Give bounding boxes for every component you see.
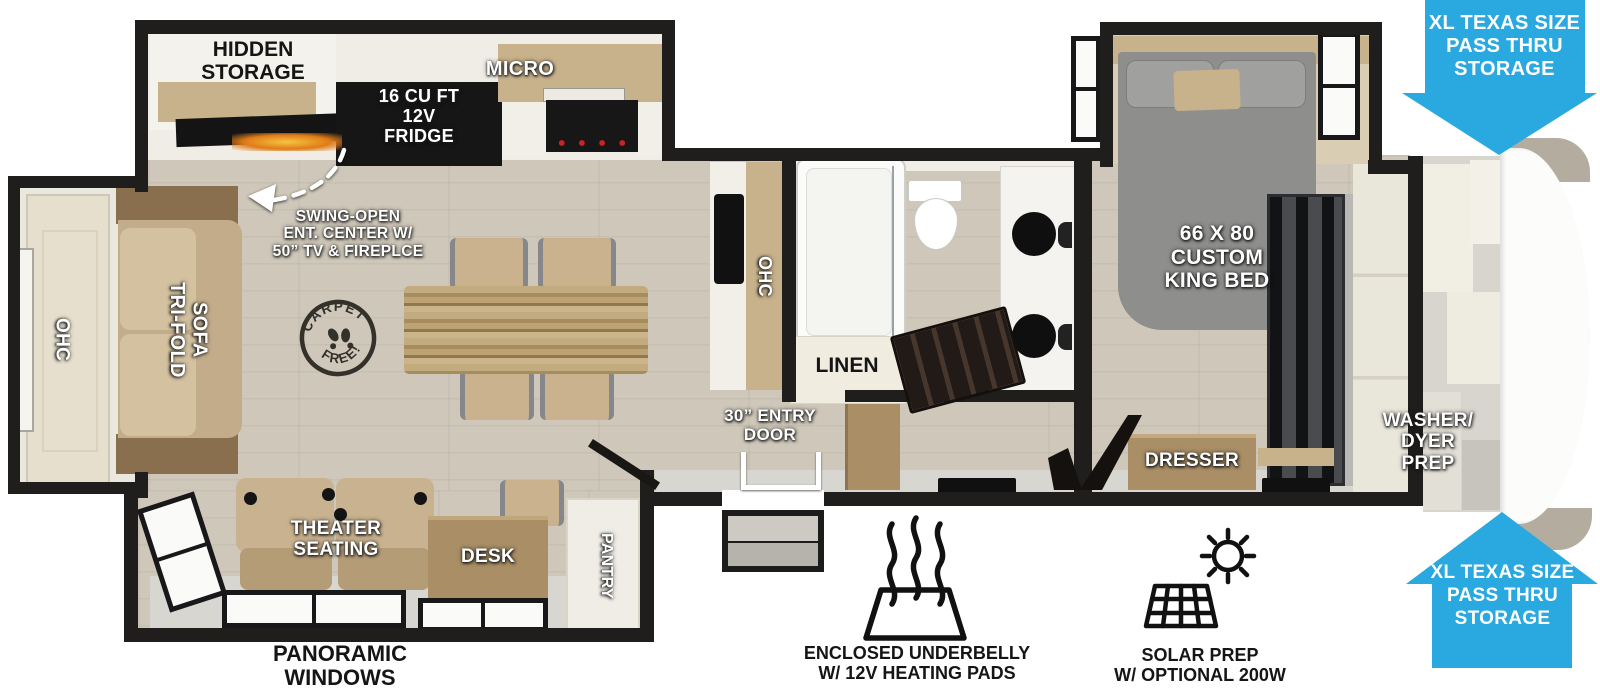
linen-label: LINEN: [790, 354, 904, 377]
entry-door-gap: [722, 490, 824, 508]
dinette-chair-1: [450, 238, 528, 290]
hall-wardrobe: [845, 402, 900, 490]
wall-lounge-left: [124, 488, 138, 642]
cupholder-2: [322, 488, 335, 501]
wall-bottom-right-seg: [822, 492, 1423, 506]
wall-top-mid: [662, 148, 1112, 161]
entry-steps: [722, 510, 824, 572]
pass-thru-top-label: XL TEXAS SIZE PASS THRU STORAGE: [1417, 12, 1592, 81]
vanity-faucet-1: [1058, 222, 1072, 248]
underbelly-caption: ENCLOSED UNDERBELLY W/ 12V HEATING PADS: [782, 644, 1052, 684]
bed-window-right: [1318, 32, 1360, 140]
wall-kitchen-right: [662, 20, 675, 160]
wall-sofa-slide-top: [8, 176, 148, 188]
wall-bedslide-left: [1100, 22, 1113, 167]
rv-floorplan: HIDDEN STORAGE 16 CU FT 12V FRIDGE MICRO…: [0, 0, 1600, 688]
wall-kitchen-top: [135, 20, 675, 34]
entry-door-bracket: [741, 452, 821, 490]
solar-caption: SOLAR PREP W/ OPTIONAL 200W SOLAR PACKAG…: [1090, 646, 1310, 688]
fridge-label: 16 CU FT 12V FRIDGE: [346, 86, 492, 146]
panoramic-window-2: [418, 598, 548, 632]
wall-sofa-slide-left: [8, 176, 20, 494]
carpet-free-stamp: CARPET FREE!: [291, 291, 386, 386]
panoramic-window-1: [222, 590, 406, 628]
wall-lounge-bottom: [124, 628, 654, 642]
shower-glass: [892, 166, 894, 338]
solar-prep-icon: [1136, 528, 1276, 636]
sofa-end-table-bottom: [116, 434, 238, 474]
hidden-storage-label: HIDDEN STORAGE: [178, 38, 328, 84]
throw-pillow: [1173, 69, 1240, 111]
panoramic-caption: PANORAMIC WINDOWS: [240, 642, 440, 688]
dresser-label: DRESSER: [1128, 450, 1256, 471]
vanity-faucet-2: [1058, 324, 1072, 350]
dinette-table: [404, 286, 648, 374]
bed-window-left: [1071, 36, 1101, 142]
wall-bedslide-top: [1100, 22, 1382, 35]
vanity-sink-1: [1012, 212, 1056, 256]
wall-bedslide-right: [1369, 22, 1382, 167]
entry-door-label: 30” ENTRY DOOR: [695, 406, 845, 444]
pass-thru-bottom-label: XL TEXAS SIZE PASS THRU STORAGE: [1420, 562, 1585, 630]
cupholder-1: [244, 492, 257, 505]
storage-shelf-1: [1423, 164, 1473, 292]
pantry-label: PANTRY: [588, 510, 624, 622]
swing-arrow-dashed: [240, 138, 360, 222]
vanity-sink-2: [1012, 314, 1056, 358]
front-cap: [1500, 148, 1590, 524]
dinette-chair-4: [540, 370, 614, 420]
counter-white-left: [500, 100, 546, 156]
bed-label: 66 X 80 CUSTOM KING BED: [1128, 222, 1306, 293]
shower: [796, 158, 906, 346]
galley-sink: [714, 194, 744, 284]
closet-mirror-edge: [1345, 194, 1353, 486]
counter-white-right: [636, 100, 664, 156]
desk-label: DESK: [428, 546, 548, 567]
sofa-label: TRI-FOLD SOFA: [150, 252, 226, 408]
wall-bottom-left-seg: [654, 492, 726, 506]
sofa-ohc-label: OHC: [40, 295, 84, 385]
dinette-chair-3: [460, 370, 534, 420]
wall-pantry-right: [640, 470, 654, 640]
galley-ohc-label: OHC: [746, 236, 784, 316]
theater-label: THEATER SEATING: [252, 518, 420, 561]
cupholder-4: [414, 492, 427, 505]
dinette-chair-2: [538, 238, 616, 290]
stove-knobs: [556, 140, 628, 146]
heating-pads-icon: [852, 514, 978, 646]
bed-bench: [1258, 448, 1334, 466]
washer-dryer-label: WASHER/ DYER PREP: [1372, 410, 1484, 474]
micro-label: MICRO: [480, 58, 560, 80]
